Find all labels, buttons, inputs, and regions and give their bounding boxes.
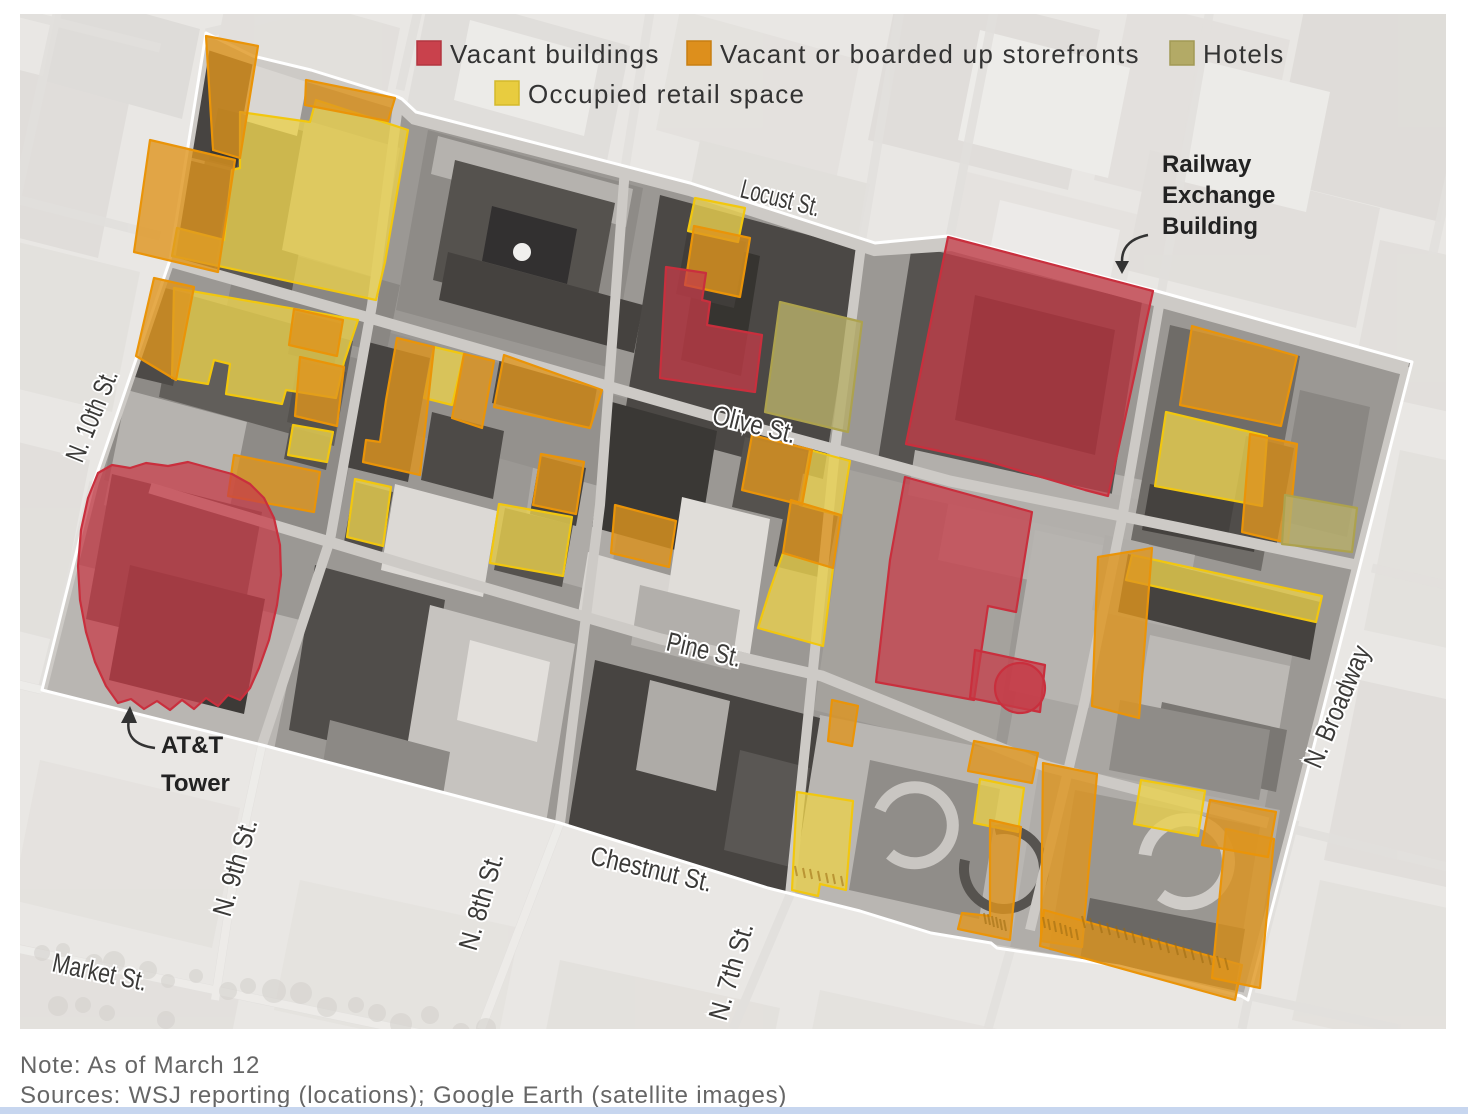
svg-text:Tower: Tower: [161, 770, 230, 797]
svg-text:Note: As of March 12: Note: As of March 12: [20, 1052, 260, 1079]
svg-text:Exchange: Exchange: [1162, 182, 1275, 209]
svg-text:Sources: WSJ reporting (locati: Sources: WSJ reporting (locations); Goog…: [20, 1082, 787, 1109]
svg-text:Occupied retail space: Occupied retail space: [528, 79, 805, 109]
svg-text:Vacant or boarded up storefron: Vacant or boarded up storefronts: [720, 39, 1140, 69]
svg-text:AT&T: AT&T: [161, 732, 224, 759]
svg-text:Building: Building: [1162, 213, 1258, 240]
svg-text:Railway: Railway: [1162, 151, 1252, 178]
svg-text:Hotels: Hotels: [1203, 39, 1285, 69]
svg-text:Vacant buildings: Vacant buildings: [450, 39, 660, 69]
